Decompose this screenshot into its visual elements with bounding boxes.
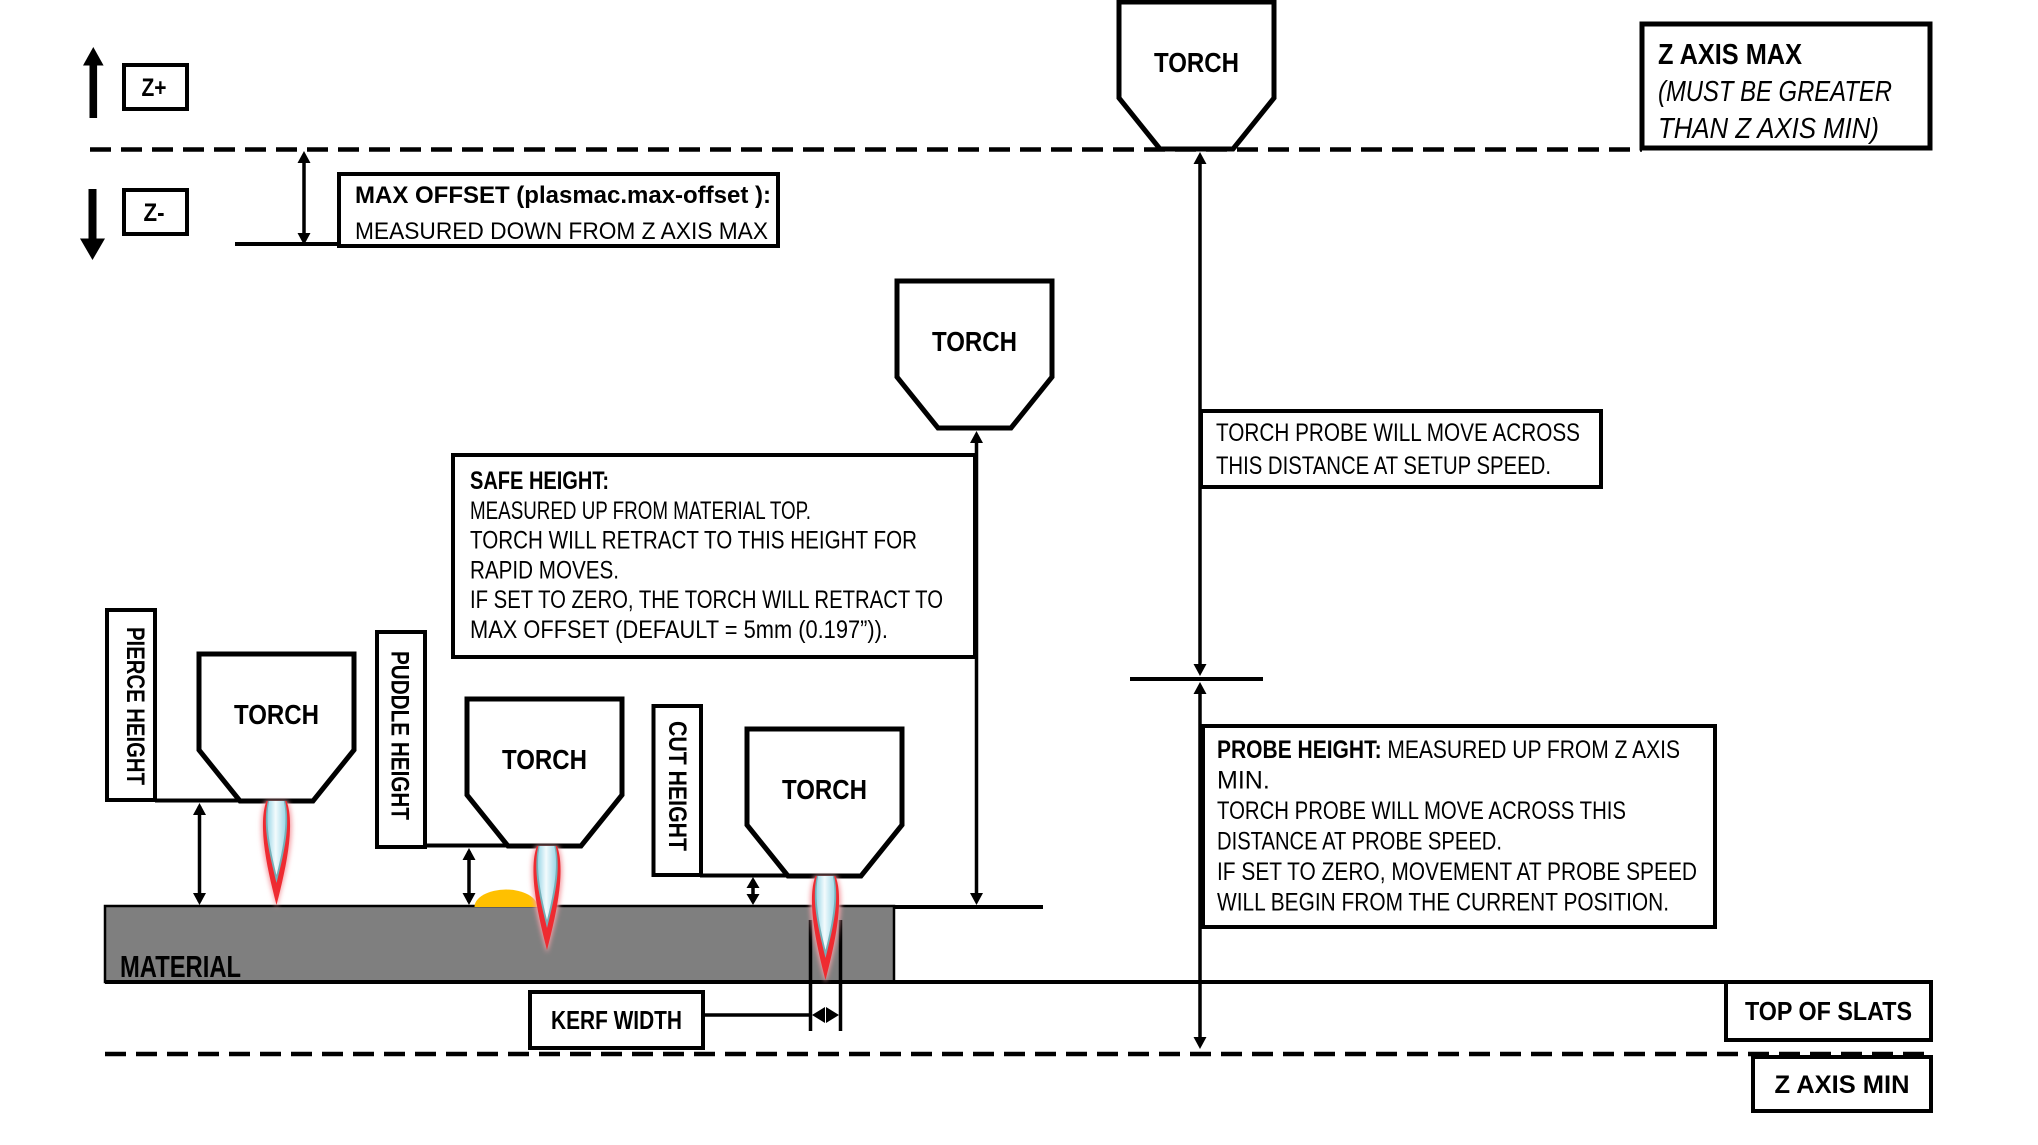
svg-text:Z AXIS MIN: Z AXIS MIN — [1775, 1071, 1910, 1099]
svg-text:TORCH: TORCH — [1154, 47, 1239, 78]
svg-text:CUT HEIGHT: CUT HEIGHT — [663, 721, 691, 851]
svg-text:MAX OFFSET (plasmac.max-offset: MAX OFFSET (plasmac.max-offset ): — [355, 182, 771, 209]
svg-text:MIN.: MIN. — [1217, 767, 1270, 795]
svg-text:(MUST BE GREATER: (MUST BE GREATER — [1658, 76, 1892, 108]
svg-text:TORCH PROBE WILL MOVE ACROSS: TORCH PROBE WILL MOVE ACROSS — [1216, 419, 1580, 447]
svg-text:MATERIAL: MATERIAL — [120, 949, 241, 984]
svg-text:MEASURED DOWN FROM Z AXIS MAX: MEASURED DOWN FROM Z AXIS MAX — [355, 218, 768, 245]
svg-text:Z+: Z+ — [142, 74, 167, 102]
svg-text:TORCH: TORCH — [502, 744, 587, 775]
svg-text:TORCH WILL RETRACT TO THIS HEI: TORCH WILL RETRACT TO THIS HEIGHT FOR — [470, 527, 917, 555]
svg-text:MAX OFFSET (DEFAULT = 5mm (0.1: MAX OFFSET (DEFAULT = 5mm (0.197”)). — [470, 616, 888, 644]
svg-text:PIERCE HEIGHT: PIERCE HEIGHT — [121, 627, 149, 785]
svg-text:DISTANCE AT PROBE SPEED.: DISTANCE AT PROBE SPEED. — [1217, 828, 1502, 856]
svg-text:MEASURED UP FROM MATERIAL TOP.: MEASURED UP FROM MATERIAL TOP. — [470, 497, 811, 525]
svg-text:THAN Z AXIS MIN): THAN Z AXIS MIN) — [1658, 113, 1879, 145]
svg-text:TORCH: TORCH — [782, 774, 867, 805]
svg-text:Z AXIS MAX: Z AXIS MAX — [1658, 39, 1803, 71]
svg-text:PROBE HEIGHT: MEASURED UP FROM: PROBE HEIGHT: MEASURED UP FROM Z AXIS — [1217, 736, 1680, 764]
svg-text:TOP OF SLATS: TOP OF SLATS — [1745, 996, 1912, 1026]
svg-text:WILL BEGIN FROM THE CURRENT PO: WILL BEGIN FROM THE CURRENT POSITION. — [1217, 889, 1669, 917]
svg-text:PUDDLE HEIGHT: PUDDLE HEIGHT — [386, 651, 414, 820]
svg-text:KERF WIDTH: KERF WIDTH — [551, 1005, 682, 1035]
svg-text:Z-: Z- — [144, 199, 165, 227]
svg-text:TORCH: TORCH — [932, 326, 1017, 357]
svg-text:RAPID MOVES.: RAPID MOVES. — [470, 556, 619, 584]
svg-text:TORCH PROBE WILL MOVE ACROSS T: TORCH PROBE WILL MOVE ACROSS THIS — [1217, 797, 1626, 825]
svg-text:TORCH: TORCH — [234, 699, 319, 730]
svg-text:THIS DISTANCE AT SETUP SPEED.: THIS DISTANCE AT SETUP SPEED. — [1216, 452, 1551, 480]
svg-text:SAFE HEIGHT:: SAFE HEIGHT: — [470, 467, 609, 495]
svg-text:IF SET TO ZERO, THE TORCH WILL: IF SET TO ZERO, THE TORCH WILL RETRACT T… — [470, 586, 943, 614]
svg-text:IF SET TO ZERO, MOVEMENT AT P: IF SET TO ZERO, MOVEMENT AT PROBE SPEED — [1217, 858, 1697, 886]
